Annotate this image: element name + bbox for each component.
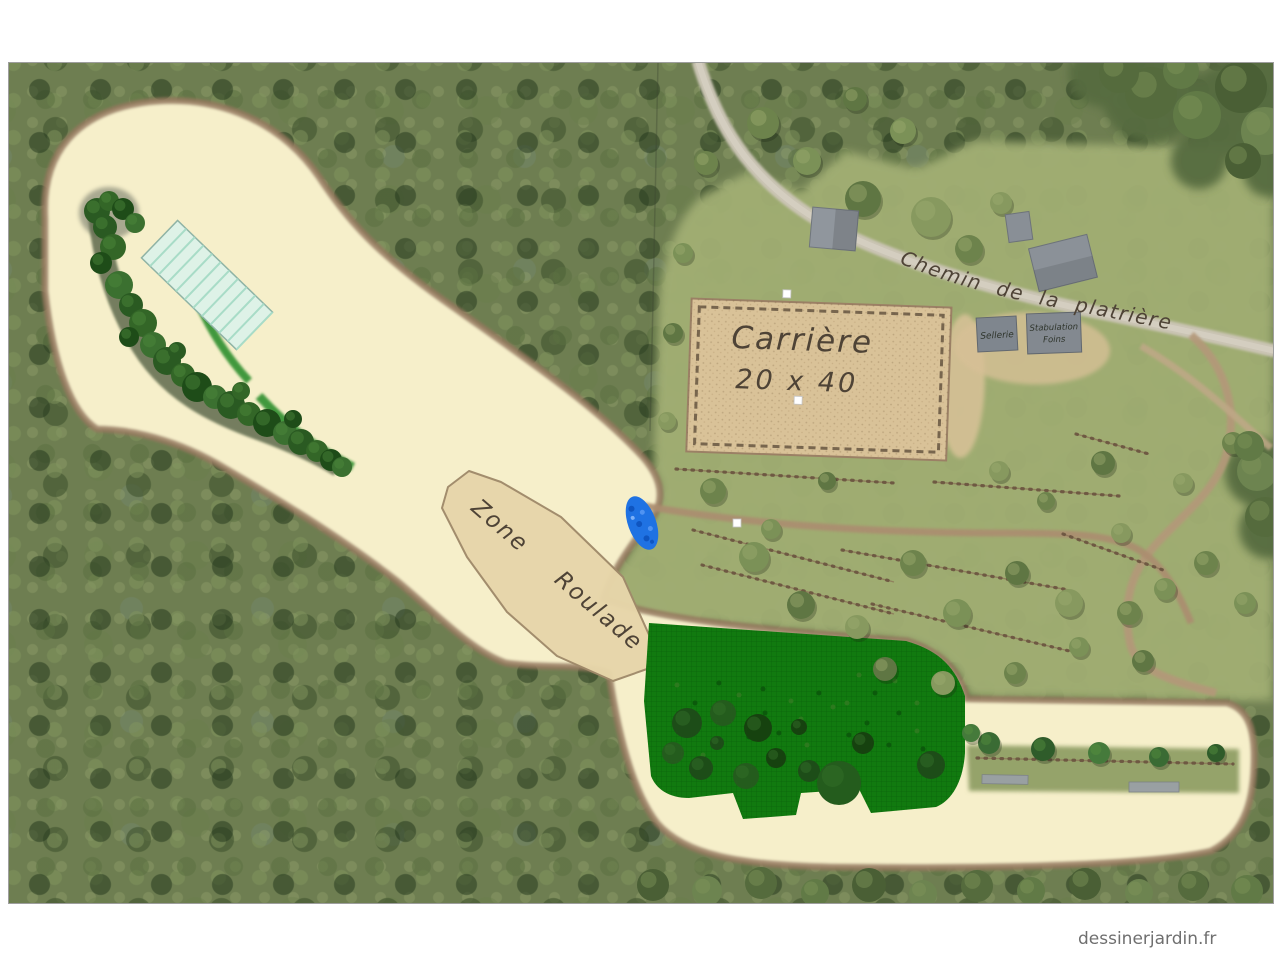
tack-room-building: Sellerie xyxy=(976,316,1018,352)
tree xyxy=(1178,871,1208,901)
tack-room-label: Sellerie xyxy=(980,330,1014,342)
tree xyxy=(1215,63,1267,113)
tree xyxy=(694,151,720,178)
tree xyxy=(843,87,869,114)
tree xyxy=(692,876,722,903)
shrub-dot xyxy=(817,691,822,696)
tree xyxy=(710,700,736,726)
tree xyxy=(689,756,713,780)
site-plan-canvas[interactable]: Zone Roulade Carrière 20 x 40 xyxy=(9,63,1273,903)
shrub-dot xyxy=(845,701,850,706)
shrub-dot xyxy=(717,681,722,686)
tree xyxy=(710,736,724,750)
handle-marker[interactable] xyxy=(733,519,741,527)
tree xyxy=(232,382,250,400)
tree xyxy=(284,410,302,428)
green-pasture xyxy=(644,623,965,819)
tree xyxy=(791,719,807,735)
watermark: dessinerjardin.fr xyxy=(1078,929,1216,949)
shrub-dot xyxy=(915,701,920,706)
tree xyxy=(961,870,993,902)
tree xyxy=(852,732,874,754)
shrub-dot xyxy=(763,711,768,716)
tree xyxy=(168,342,186,360)
shrub-dot xyxy=(805,743,810,748)
tree xyxy=(733,763,759,789)
shrub-dot xyxy=(831,705,836,710)
tree xyxy=(1017,877,1045,903)
shrub-dot xyxy=(693,701,698,706)
tree xyxy=(90,252,112,274)
tree xyxy=(1225,143,1261,179)
shrub-dot xyxy=(865,721,870,726)
tree xyxy=(909,880,937,903)
shed-small xyxy=(1005,211,1033,242)
tree xyxy=(637,869,669,901)
tree xyxy=(890,118,918,147)
handle-marker[interactable] xyxy=(783,290,791,298)
stable-label-2: Foins xyxy=(1043,335,1066,346)
shrub-dot xyxy=(777,731,782,736)
tree xyxy=(801,879,829,903)
shrub-dot xyxy=(737,693,742,698)
handle-marker[interactable] xyxy=(794,396,802,404)
shrub-dot xyxy=(915,729,920,734)
tree xyxy=(1173,91,1221,139)
tree xyxy=(1125,879,1153,903)
tree xyxy=(798,760,820,782)
site-plan-map[interactable]: Zone Roulade Carrière 20 x 40 xyxy=(8,62,1274,904)
tree xyxy=(1234,431,1264,461)
shrub-dot xyxy=(857,673,862,678)
stable-label-1: Stabulation xyxy=(1029,322,1078,334)
shrub-dot xyxy=(789,699,794,704)
tree xyxy=(119,327,139,347)
garden-plan-page: Zone Roulade Carrière 20 x 40 xyxy=(0,0,1280,960)
shrub-dot xyxy=(761,687,766,692)
tree xyxy=(745,867,777,899)
tree xyxy=(1231,875,1263,903)
shrub-dot xyxy=(921,747,926,752)
tree xyxy=(744,714,772,742)
shrub-dot xyxy=(847,733,852,738)
arena-size: 20 x 40 xyxy=(735,364,859,399)
tree xyxy=(662,742,684,764)
tree xyxy=(332,457,352,477)
arena-title: Carrière xyxy=(731,320,874,361)
tree xyxy=(917,751,945,779)
barn-1 xyxy=(809,207,858,251)
shrub-dot xyxy=(675,683,680,688)
tree xyxy=(817,761,861,805)
tree xyxy=(852,868,886,902)
shrub-dot xyxy=(897,711,902,716)
stable-building: Stabulation Foins xyxy=(1026,312,1081,354)
tree xyxy=(766,748,786,768)
tree xyxy=(125,213,145,233)
tree xyxy=(793,147,823,178)
shrub-dot xyxy=(887,743,892,748)
tree xyxy=(747,107,781,142)
tree xyxy=(1069,868,1101,900)
tree xyxy=(672,708,702,738)
shrub-dot xyxy=(873,691,878,696)
